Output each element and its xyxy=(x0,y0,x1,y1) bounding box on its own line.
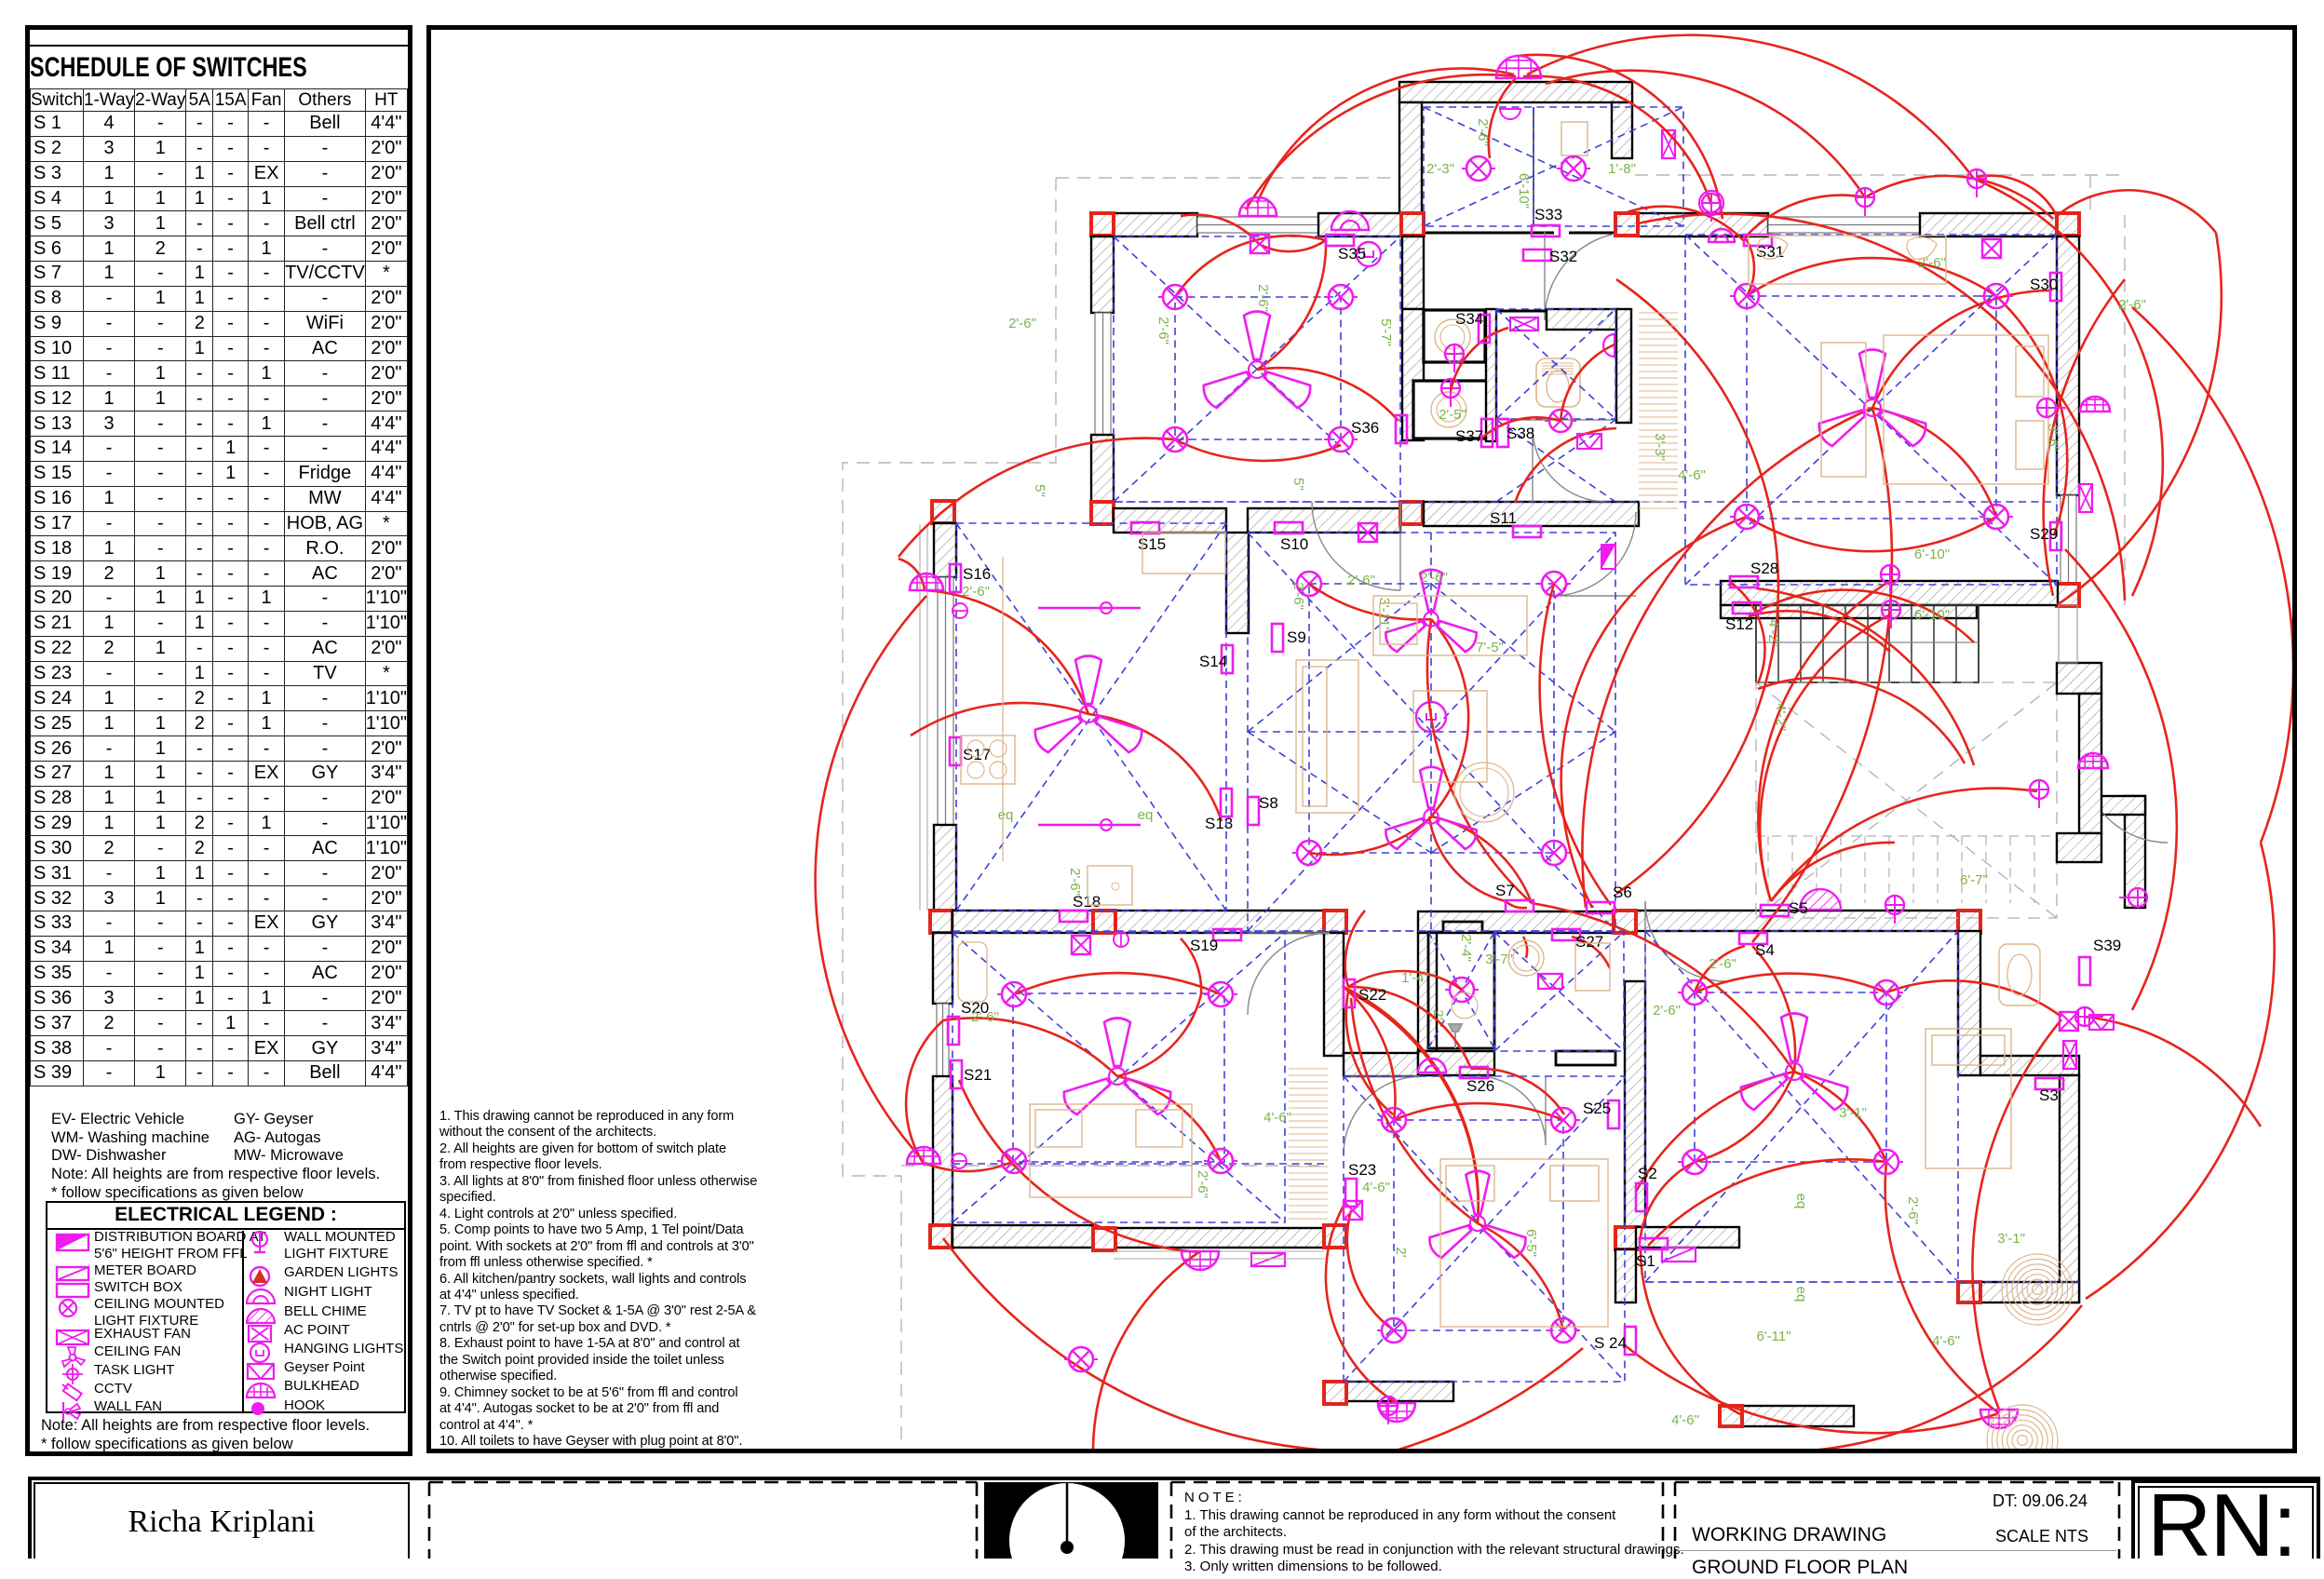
svg-text:S3: S3 xyxy=(2039,1086,2059,1104)
svg-text:6'-11": 6'-11" xyxy=(1756,1329,1790,1344)
svg-text:5": 5" xyxy=(1290,478,1306,491)
svg-text:2'-6": 2'-6" xyxy=(1155,317,1171,344)
svg-text:2'-6": 2'-6" xyxy=(1709,956,1736,972)
svg-text:S21: S21 xyxy=(964,1066,992,1084)
svg-text:2'-3": 2'-3" xyxy=(1426,161,1454,177)
svg-text:S35: S35 xyxy=(1338,245,1366,263)
svg-text:S1: S1 xyxy=(1636,1252,1655,1270)
svg-text:S7: S7 xyxy=(1495,882,1515,899)
svg-text:4'-2": 4'-2" xyxy=(1765,619,1781,647)
svg-text:5": 5" xyxy=(1032,484,1047,497)
svg-text:4'-2": 4'-2" xyxy=(1773,703,1789,731)
svg-text:S13: S13 xyxy=(1205,815,1233,832)
svg-text:S31: S31 xyxy=(1756,243,1784,261)
svg-text:3'-1": 3'-1" xyxy=(1839,1105,1867,1121)
svg-text:6'-5": 6'-5" xyxy=(1523,1229,1539,1257)
svg-text:S37: S37 xyxy=(1455,427,1483,445)
svg-text:S5: S5 xyxy=(1789,899,1808,917)
svg-text:2'-6": 2'-6" xyxy=(1918,255,1946,271)
svg-text:S39: S39 xyxy=(2093,937,2121,954)
svg-text:S36: S36 xyxy=(1351,419,1379,437)
svg-text:4'-6": 4'-6" xyxy=(1362,1180,1390,1195)
svg-text:7'-5": 7'-5" xyxy=(1476,640,1504,655)
svg-text:eq: eq xyxy=(1793,1194,1809,1209)
svg-text:S27: S27 xyxy=(1575,933,1603,951)
svg-text:2'-6": 2'-6" xyxy=(1067,868,1083,896)
svg-text:S6: S6 xyxy=(1613,884,1632,901)
svg-text:S14: S14 xyxy=(1199,653,1227,670)
svg-text:S28: S28 xyxy=(1750,560,1778,577)
svg-text:S4: S4 xyxy=(1755,941,1775,959)
svg-text:S16: S16 xyxy=(963,565,991,583)
svg-text:S 24: S 24 xyxy=(1594,1334,1627,1352)
svg-text:S2: S2 xyxy=(1638,1165,1657,1182)
svg-text:4'-6": 4'-6" xyxy=(1932,1333,1960,1349)
svg-text:2'-6": 2'-6" xyxy=(1475,118,1491,146)
svg-text:6'-10": 6'-10" xyxy=(1516,173,1532,209)
svg-text:S33: S33 xyxy=(1534,206,1562,223)
svg-text:4'-6": 4'-6" xyxy=(1678,467,1706,483)
svg-text:2': 2' xyxy=(1393,1247,1409,1257)
svg-text:3'-6": 3'-6" xyxy=(2045,424,2061,452)
svg-text:2'-5": 2'-5" xyxy=(1439,407,1466,423)
svg-text:2'-6": 2'-6" xyxy=(1420,570,1448,586)
svg-text:2'-6": 2'-6" xyxy=(1008,316,1036,331)
svg-text:S30: S30 xyxy=(2030,276,2058,293)
svg-text:S11: S11 xyxy=(1490,509,1517,527)
svg-text:4'-6": 4'-6" xyxy=(1671,1412,1699,1428)
svg-text:S34: S34 xyxy=(1455,310,1483,328)
svg-text:5'-7": 5'-7" xyxy=(1378,318,1394,346)
svg-text:S26: S26 xyxy=(1466,1077,1494,1095)
svg-text:S25: S25 xyxy=(1583,1100,1611,1117)
svg-text:2'-6": 2'-6" xyxy=(1905,1196,1921,1224)
svg-text:6'-7": 6'-7" xyxy=(1960,872,1988,888)
svg-text:2'-6": 2'-6" xyxy=(1290,582,1306,610)
svg-text:S32: S32 xyxy=(1549,248,1577,265)
svg-text:S8: S8 xyxy=(1259,794,1278,812)
svg-text:3'-1": 3'-1" xyxy=(1997,1231,2025,1247)
svg-text:1'-4": 1'-4" xyxy=(1401,970,1429,986)
svg-text:2'-6": 2'-6" xyxy=(1195,1170,1210,1198)
svg-text:S19: S19 xyxy=(1190,937,1218,954)
svg-text:S22: S22 xyxy=(1358,986,1386,1004)
svg-text:6'-10": 6'-10" xyxy=(1914,547,1950,562)
svg-text:eq: eq xyxy=(1793,1287,1809,1302)
svg-text:S23: S23 xyxy=(1348,1161,1376,1179)
svg-text:S9: S9 xyxy=(1287,628,1306,646)
svg-text:1'-8": 1'-8" xyxy=(1608,161,1636,177)
svg-text:S12: S12 xyxy=(1725,615,1753,633)
svg-text:2'-6": 2'-6" xyxy=(1255,284,1271,312)
svg-text:S38: S38 xyxy=(1507,425,1534,442)
svg-text:3'-11": 3'-11" xyxy=(1376,597,1392,631)
svg-text:S29: S29 xyxy=(2030,525,2058,543)
svg-text:6'-10": 6'-10" xyxy=(1914,607,1950,623)
svg-text:eq: eq xyxy=(998,807,1014,823)
svg-text:4'-6": 4'-6" xyxy=(1263,1110,1291,1126)
svg-text:2': 2' xyxy=(1430,1009,1446,1019)
svg-text:2'-6": 2'-6" xyxy=(971,1009,999,1025)
svg-text:eq: eq xyxy=(1138,807,1154,823)
svg-text:2'-6": 2'-6" xyxy=(2118,297,2146,313)
svg-text:S10: S10 xyxy=(1280,535,1308,553)
svg-text:2'-6": 2'-6" xyxy=(962,584,990,600)
svg-text:2'-4": 2'-4" xyxy=(1458,934,1474,962)
svg-text:2'-6": 2'-6" xyxy=(1653,1003,1681,1019)
svg-text:2'-6": 2'-6" xyxy=(1347,573,1375,588)
